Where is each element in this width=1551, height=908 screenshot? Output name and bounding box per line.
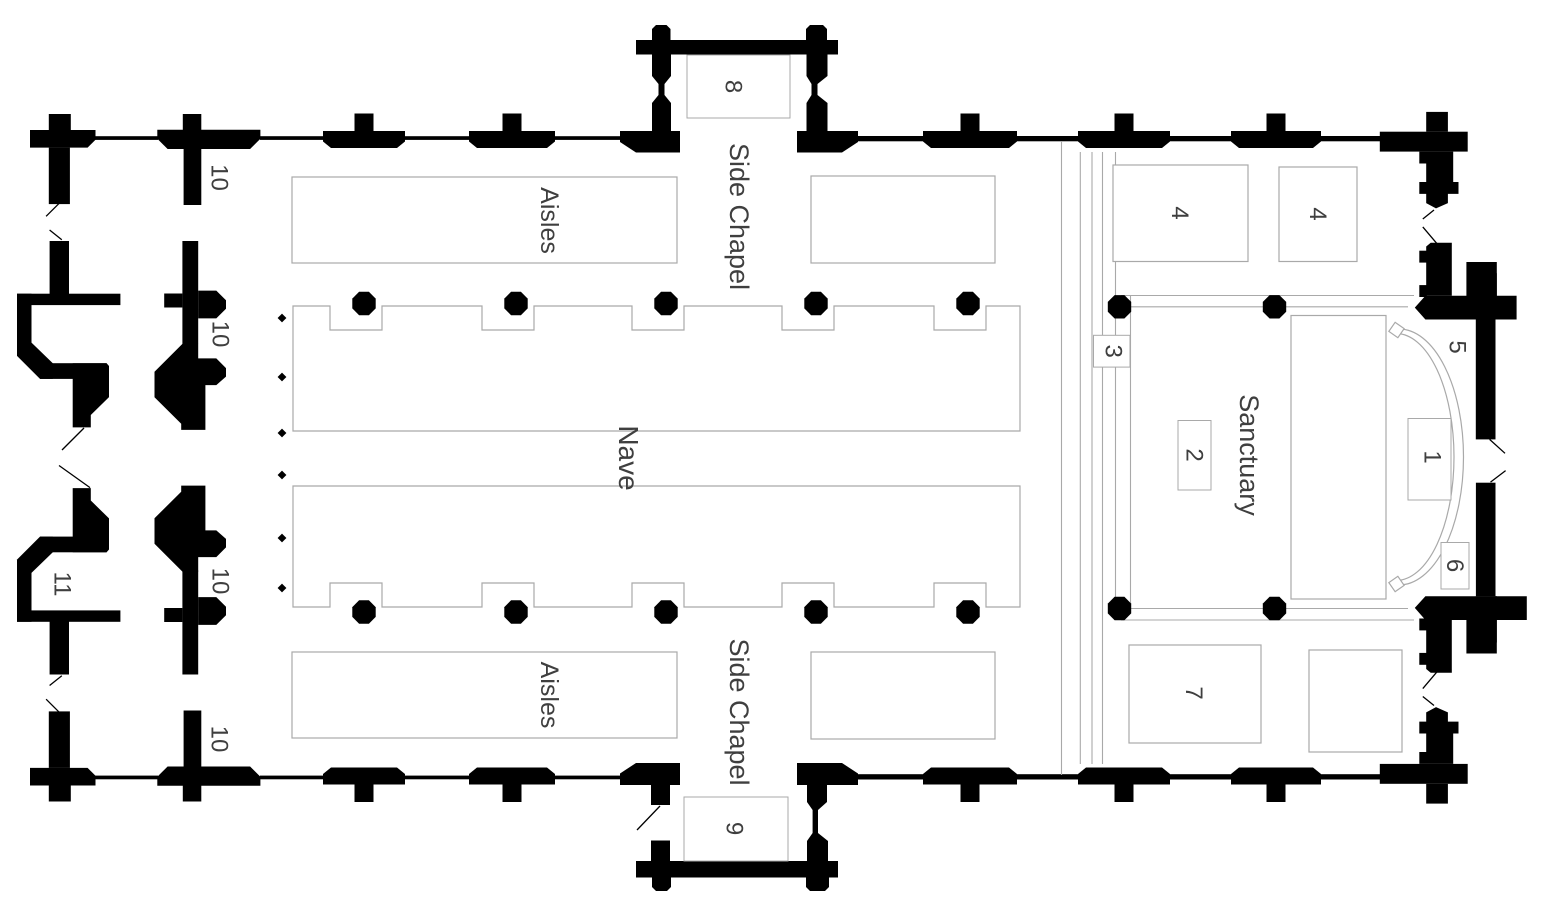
svg-text:Side Chapel: Side Chapel [724,638,754,785]
svg-text:10: 10 [206,568,233,595]
svg-text:5: 5 [1443,340,1470,353]
svg-text:2: 2 [1180,448,1207,461]
svg-text:8: 8 [719,80,746,93]
svg-text:1: 1 [1418,450,1445,463]
svg-text:4: 4 [1304,207,1331,220]
svg-text:6: 6 [1441,559,1468,572]
svg-text:11: 11 [48,572,75,597]
svg-text:3: 3 [1099,345,1126,358]
svg-text:Side Chapel: Side Chapel [724,143,754,290]
svg-text:7: 7 [1180,686,1207,699]
svg-text:Sanctuary: Sanctuary [1234,394,1264,516]
svg-text:4: 4 [1166,206,1193,219]
svg-text:10: 10 [206,321,233,348]
svg-text:9: 9 [720,822,747,835]
svg-text:10: 10 [205,164,232,191]
svg-text:Nave: Nave [613,425,644,490]
svg-text:Aisles: Aisles [535,662,563,729]
svg-text:10: 10 [205,726,232,753]
svg-text:Aisles: Aisles [535,187,563,254]
